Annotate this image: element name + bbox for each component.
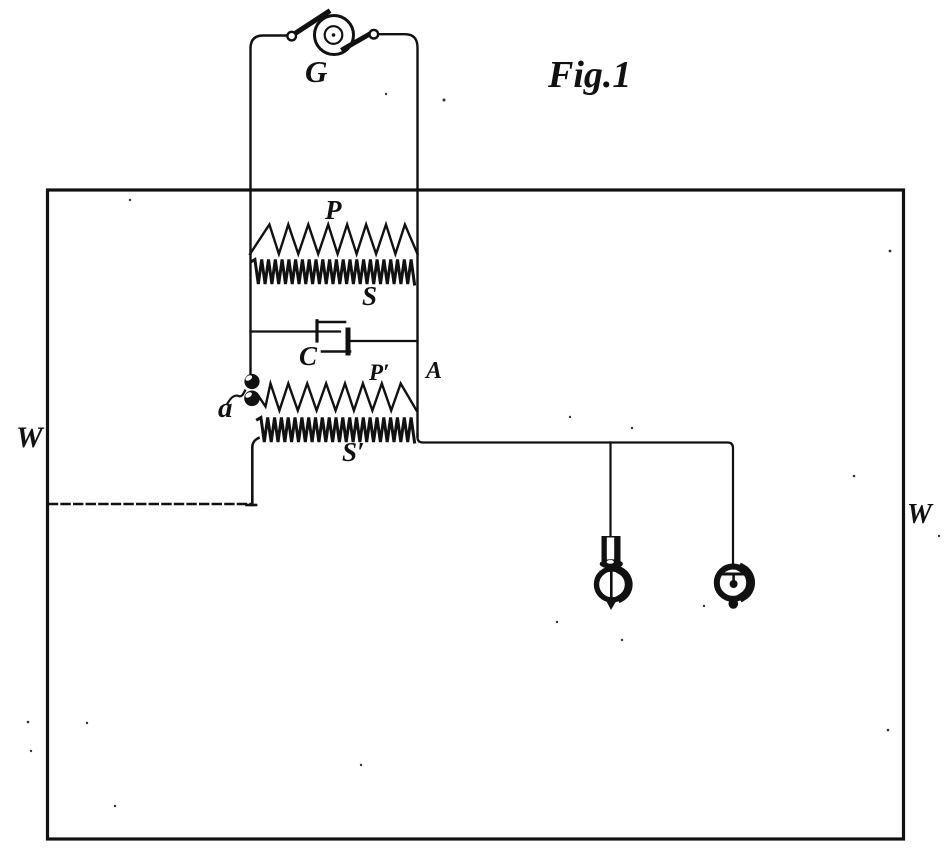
svg-text:W: W xyxy=(16,421,45,454)
svg-text:S: S xyxy=(362,281,377,311)
svg-text:P′: P′ xyxy=(368,360,390,385)
svg-text:W: W xyxy=(907,499,934,530)
svg-text:G: G xyxy=(305,54,328,89)
svg-text:a: a xyxy=(218,392,233,424)
svg-text:Fig.1: Fig.1 xyxy=(547,54,631,96)
svg-text:S′: S′ xyxy=(342,437,365,467)
svg-text:C: C xyxy=(299,341,318,371)
svg-text:A: A xyxy=(424,358,442,384)
svg-text:P: P xyxy=(324,195,342,225)
